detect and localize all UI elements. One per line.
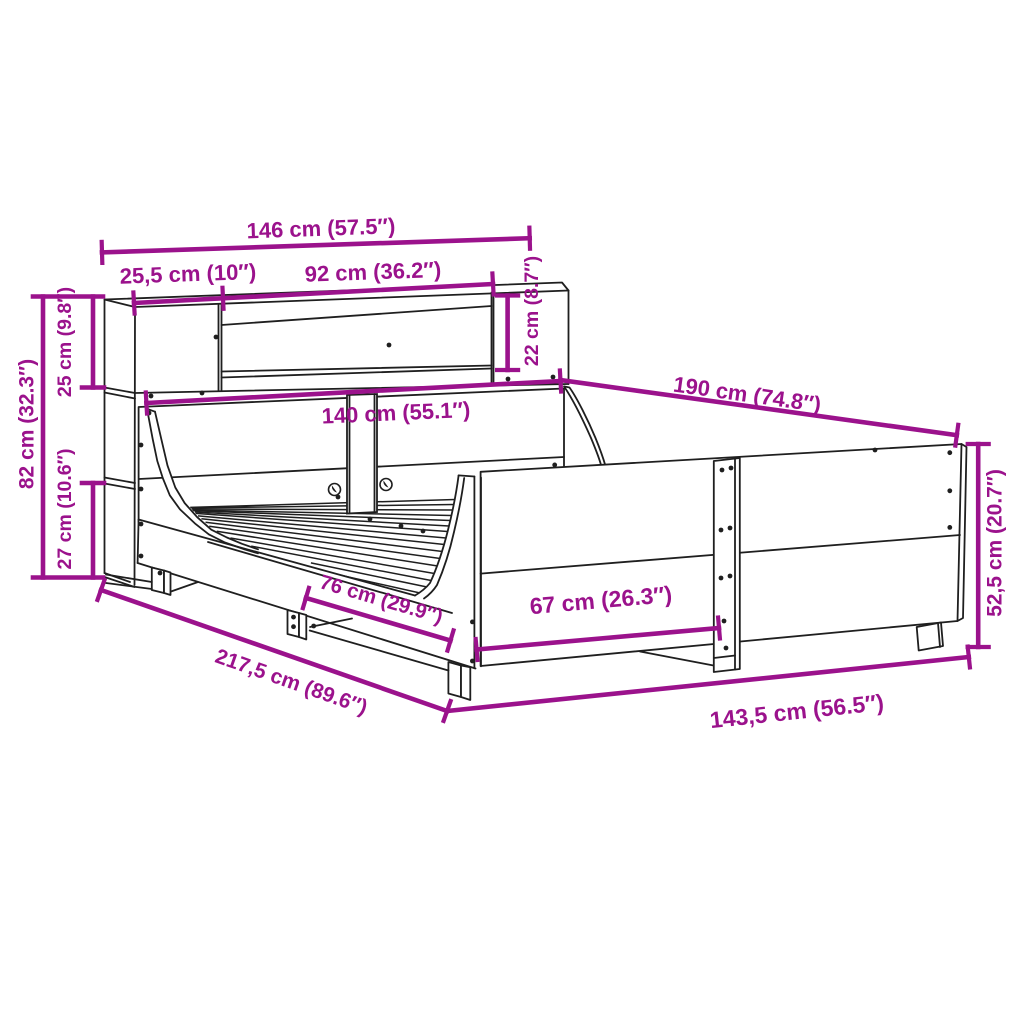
svg-text:27 cm (10.6″): 27 cm (10.6″) — [54, 449, 76, 570]
svg-text:25,5 cm (10″): 25,5 cm (10″) — [119, 259, 256, 289]
svg-text:22 cm (8.7″): 22 cm (8.7″) — [521, 256, 543, 366]
svg-text:52,5 cm (20.7″): 52,5 cm (20.7″) — [984, 469, 1007, 617]
svg-text:146 cm (57.5″): 146 cm (57.5″) — [246, 213, 396, 243]
svg-text:92 cm (36.2″): 92 cm (36.2″) — [304, 257, 441, 287]
svg-text:25 cm (9.8″): 25 cm (9.8″) — [54, 287, 76, 397]
svg-text:82 cm (32.3″): 82 cm (32.3″) — [16, 359, 39, 489]
